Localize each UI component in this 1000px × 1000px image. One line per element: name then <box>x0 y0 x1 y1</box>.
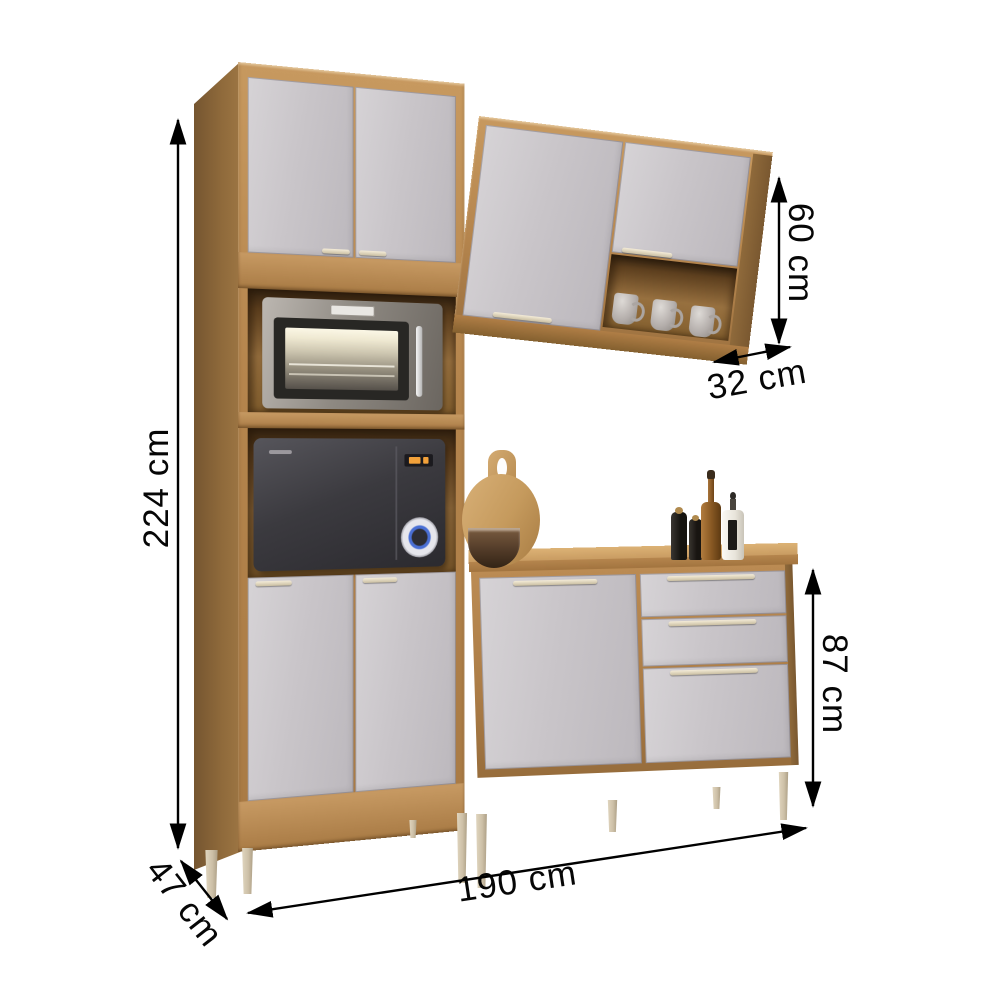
product-dimension-diagram: 224 cm 60 cm 32 cm 87 cm 190 cm 47 cm <box>0 0 1000 1000</box>
dimension-lines-layer <box>0 0 1000 1000</box>
dimension-line-wall-cabinet-depth <box>714 347 790 362</box>
dimension-line-total-depth <box>181 861 227 919</box>
dimension-line-total-width <box>248 828 806 913</box>
